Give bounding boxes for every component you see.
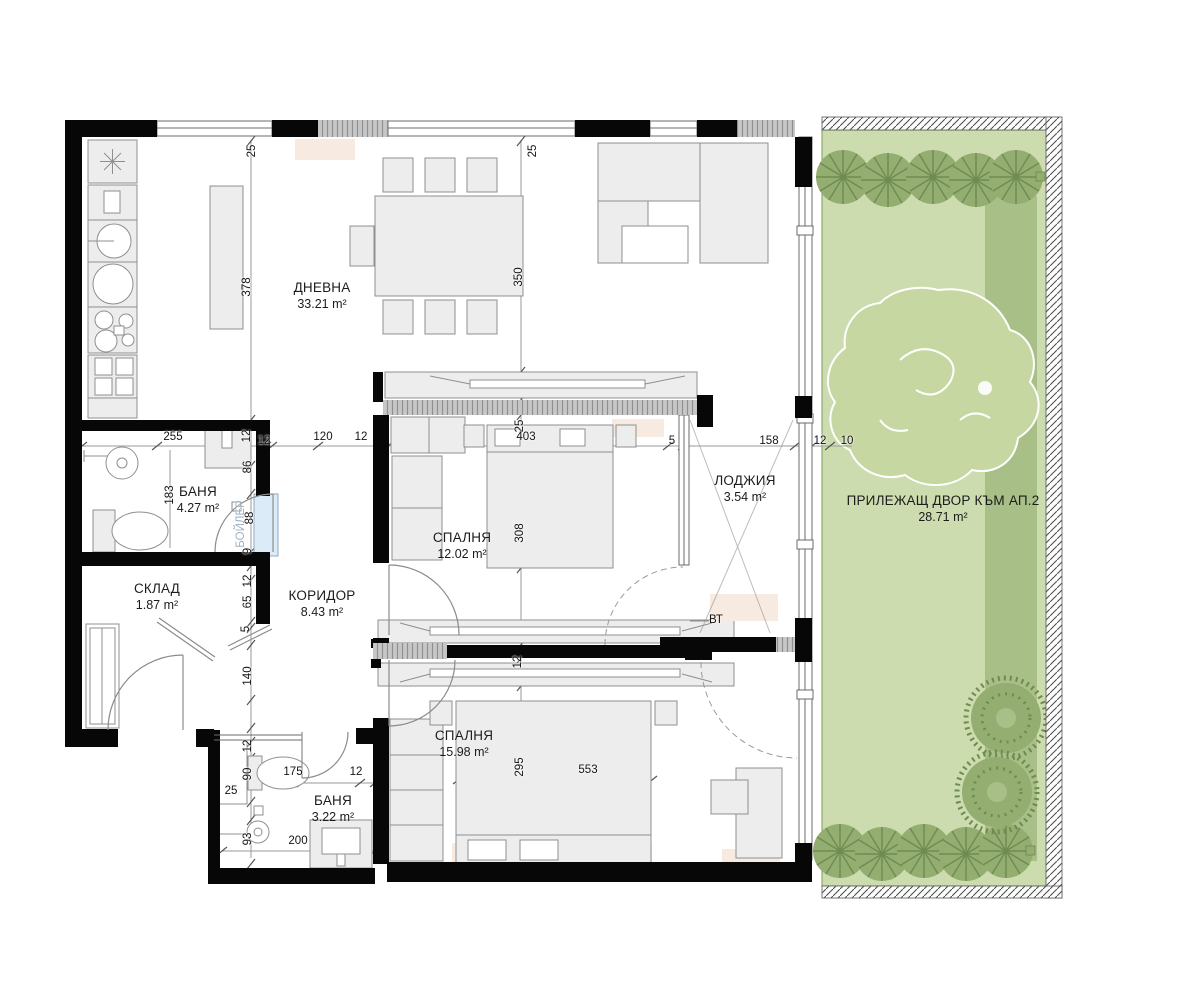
- hedge-row-bottom: [813, 824, 1035, 881]
- kitchen-island: [210, 186, 243, 329]
- tv-cabinet-living: [385, 372, 697, 398]
- shower-head-icon: [106, 447, 138, 479]
- boiler-closet: [254, 494, 278, 556]
- floor-drain-icon: [254, 806, 263, 815]
- floor-plan-canvas: ДНЕВНА33.21 m²БАНЯ4.27 m²СКЛАД1.87 m²КОР…: [0, 0, 1180, 1000]
- hatched-wall: [318, 120, 388, 137]
- closet-doors-open: [157, 618, 272, 661]
- hedge-row-top: [816, 150, 1045, 207]
- hatched-wall: [383, 400, 697, 415]
- loggia-items: [690, 420, 793, 633]
- coffee-table: [622, 226, 688, 263]
- bedroom2-furniture: [378, 663, 782, 867]
- chair: [711, 780, 748, 814]
- bath2-fixtures: [213, 740, 372, 868]
- rug: [295, 139, 355, 160]
- sliding-door-pocket: [373, 643, 447, 659]
- storage-shelf: [86, 624, 119, 728]
- dining-set: [350, 158, 523, 334]
- bath1-fixtures: [84, 428, 251, 552]
- sofa: [598, 143, 768, 263]
- kitchen-counter: [88, 140, 137, 418]
- garden: [813, 117, 1062, 898]
- dining-table: [375, 196, 523, 296]
- small-appliance-icon: [104, 191, 120, 213]
- floorplan-graphics: [0, 0, 1180, 1000]
- tv-icon: [470, 380, 645, 388]
- shower-head-icon: [247, 821, 269, 843]
